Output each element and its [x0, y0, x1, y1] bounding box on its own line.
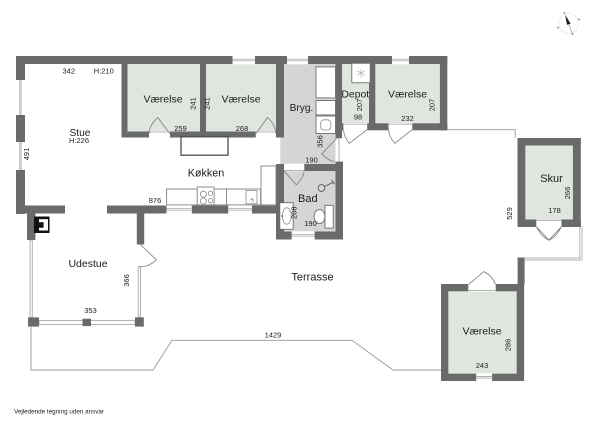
svg-text:190: 190 [305, 156, 318, 165]
svg-text:207: 207 [428, 99, 437, 112]
svg-text:Værelse: Værelse [462, 326, 501, 338]
svg-text:Bad: Bad [298, 193, 318, 205]
svg-text:268: 268 [236, 124, 249, 133]
svg-text:H:226: H:226 [69, 136, 89, 145]
svg-text:1429: 1429 [265, 331, 282, 340]
svg-text:208: 208 [289, 206, 298, 219]
svg-text:876: 876 [149, 196, 162, 205]
svg-text:178: 178 [548, 206, 561, 215]
svg-text:353: 353 [84, 306, 97, 315]
svg-text:259: 259 [174, 124, 187, 133]
svg-text:241: 241 [203, 97, 212, 110]
svg-text:Værelse: Værelse [221, 94, 260, 106]
svg-text:243: 243 [476, 361, 489, 370]
svg-text:491: 491 [22, 148, 31, 161]
svg-text:232: 232 [401, 114, 414, 123]
svg-text:Vejledende tegning uden ansvar: Vejledende tegning uden ansvar [14, 409, 104, 416]
svg-text:Værelse: Værelse [388, 89, 427, 101]
svg-text:Terrasse: Terrasse [291, 272, 333, 284]
svg-text:Udestue: Udestue [68, 258, 107, 270]
svg-text:366: 366 [122, 274, 131, 287]
svg-text:Værelse: Værelse [143, 94, 182, 106]
svg-text:529: 529 [505, 207, 514, 220]
svg-text:Køkken: Køkken [188, 167, 225, 179]
svg-text:H:210: H:210 [94, 67, 114, 76]
svg-text:241: 241 [189, 97, 198, 110]
svg-text:98: 98 [354, 113, 362, 122]
svg-text:Skur: Skur [540, 173, 563, 185]
svg-text:Bryg.: Bryg. [290, 103, 314, 114]
svg-text:342: 342 [63, 67, 76, 76]
svg-text:356: 356 [315, 135, 324, 148]
svg-text:266: 266 [563, 187, 572, 200]
svg-text:286: 286 [503, 339, 512, 352]
svg-text:190: 190 [304, 219, 317, 228]
svg-text:207: 207 [355, 99, 364, 112]
